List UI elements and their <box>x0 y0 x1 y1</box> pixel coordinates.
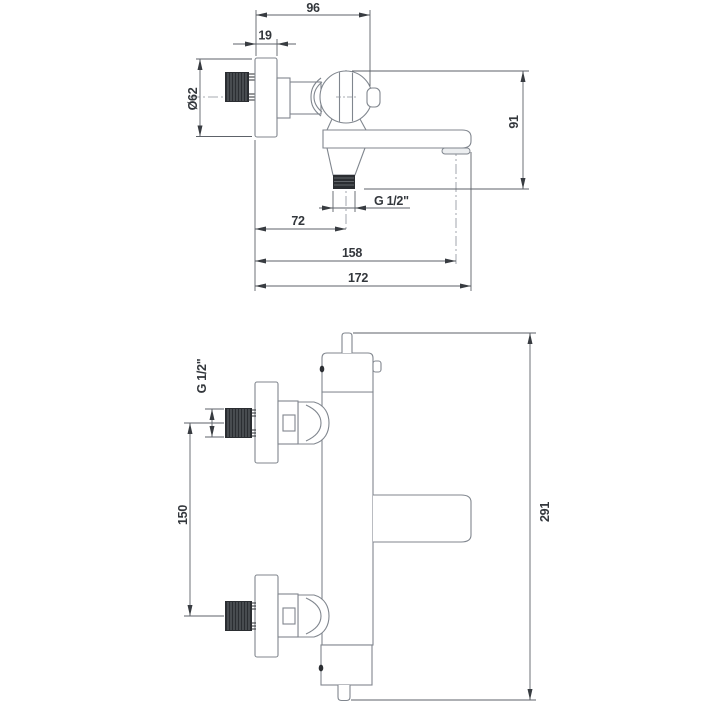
technical-drawing: 96 19 Ø62 91 G 1/2" 72 <box>0 0 720 720</box>
outlet-thread <box>333 175 355 189</box>
lower-inlet-connector <box>225 575 298 657</box>
head-side-button <box>373 361 381 372</box>
handle-knob <box>320 71 372 123</box>
side-knob <box>367 88 380 107</box>
aerator <box>442 148 470 154</box>
dim-depth-total: 96 <box>306 1 320 15</box>
dim-plate-diameter: Ø62 <box>186 87 200 110</box>
dim-plate-depth: 19 <box>258 29 272 43</box>
column-spout <box>373 495 471 542</box>
bottom-stub <box>338 685 350 701</box>
upper-inlet-elbow <box>298 402 329 444</box>
bottom-view-mixer-column: G 1/2" 150 291 <box>176 333 552 701</box>
outlet-cone <box>327 148 365 175</box>
dim-height: 91 <box>507 115 521 129</box>
top-view-wall-mixer: 96 19 Ø62 91 G 1/2" 72 <box>186 1 529 291</box>
dim-outlet-offset: 72 <box>291 214 305 228</box>
dim-outlet-thread: G 1/2" <box>374 194 409 208</box>
dim-inlet-thread: G 1/2" <box>195 358 209 393</box>
bottom-pin <box>319 665 324 672</box>
dim-total-height: 291 <box>538 502 552 522</box>
escutcheon-plate <box>255 58 277 137</box>
bottom-block <box>321 645 372 685</box>
spout-body <box>323 130 471 148</box>
column-body <box>322 392 373 645</box>
wall-inlet-thread <box>225 72 255 102</box>
upper-inlet-connector <box>225 382 298 463</box>
shower-outlet-stub <box>342 333 352 353</box>
dim-spout-reach: 172 <box>348 271 368 285</box>
dim-aerator-reach: 158 <box>342 246 362 260</box>
dim-inlet-spacing: 150 <box>176 505 190 525</box>
lower-inlet-elbow <box>298 595 329 637</box>
head-pin <box>320 366 325 373</box>
thermostat-head <box>322 353 373 392</box>
